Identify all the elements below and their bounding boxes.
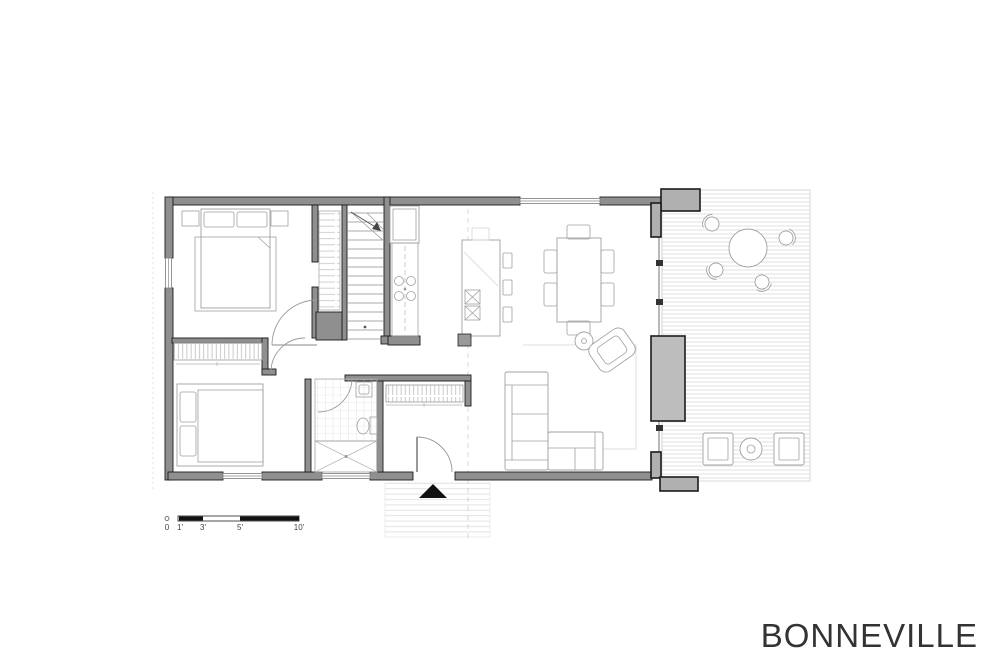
burner: [407, 277, 416, 286]
wall-stair-right: [384, 197, 390, 343]
burner: [407, 292, 416, 301]
pillar-bottom-stem: [651, 452, 661, 478]
scale-seg-1: [179, 517, 203, 521]
closet-slider-2: [386, 403, 462, 407]
mullion: [656, 299, 663, 305]
island-counter: [462, 240, 500, 336]
wall-bath-right: [377, 381, 383, 472]
stool: [503, 280, 512, 295]
mullion: [656, 425, 663, 431]
bed-2: [177, 384, 263, 466]
dining-set: [544, 225, 614, 335]
stair-dot: [364, 326, 367, 329]
floor-plan-canvas: 0 1' 3' 5' 10' BONNEVILLE: [0, 0, 1000, 667]
dining-chair: [544, 250, 557, 273]
scale-label-3: 3': [200, 523, 206, 532]
deck-planter: [651, 336, 685, 421]
wall-hall-left: [305, 379, 311, 472]
pillar-top-stem: [651, 203, 661, 237]
stair-arrow-head: [372, 222, 381, 231]
wall-kitchen-base: [388, 336, 420, 345]
wall-closet-end: [465, 381, 471, 406]
master-bed: [201, 209, 270, 308]
scale-label-1: 1': [177, 523, 183, 532]
entry-closet: [386, 385, 463, 402]
dining-chair: [567, 225, 590, 239]
pillar-top-right: [661, 189, 700, 211]
project-title: BONNEVILLE: [761, 617, 978, 654]
bedroom-2: [177, 384, 263, 466]
wall-bed2-jog-h: [262, 369, 276, 375]
shower-drain: [345, 455, 348, 458]
fridge: [390, 206, 419, 243]
wall-master-right-upper: [312, 205, 318, 262]
stool: [503, 253, 512, 268]
scale-label-0: 0: [165, 523, 170, 532]
kitchen-island: [458, 228, 512, 346]
wall-bottom-2: [262, 472, 322, 480]
mullion: [656, 260, 663, 266]
dining-chair: [601, 250, 614, 273]
armchair: [586, 325, 639, 375]
dining-table: [557, 238, 601, 322]
island-hood: [472, 228, 489, 240]
deck-side-table: [740, 438, 762, 460]
nightstand: [271, 211, 288, 226]
stool: [503, 307, 512, 322]
wall-left-1: [165, 197, 173, 258]
burner: [395, 277, 404, 286]
door-bedroom2-arc: [271, 338, 305, 372]
closet-slider-1: [176, 362, 260, 366]
living-room: [505, 325, 638, 470]
burner: [395, 292, 404, 301]
linen-closet: [319, 211, 340, 310]
floor-plan-drawing: 0 1' 3' 5' 10' BONNEVILLE: [0, 0, 1000, 667]
master-bedroom: [182, 209, 288, 311]
stairs: [347, 212, 384, 339]
wall-closet-top: [172, 338, 268, 343]
scale-bar: 0 1' 3' 5' 10': [165, 516, 305, 532]
island-column: [458, 334, 471, 346]
deck-round-table: [729, 229, 767, 267]
scale-label-10: 10': [294, 523, 305, 532]
scale-label-5: 5': [237, 523, 243, 532]
bedroom2-closet: [174, 343, 262, 360]
wall-bottom-1: [168, 472, 223, 480]
cooktop-knob: [404, 288, 407, 291]
dining-chair: [544, 283, 557, 306]
kitchen: [390, 206, 419, 336]
dining-chair: [601, 283, 614, 306]
wall-left-2: [165, 288, 173, 480]
bathroom: [315, 379, 377, 472]
scale-zero-mark: [165, 517, 169, 521]
door-master-arc: [272, 300, 317, 345]
door-entry-arc: [417, 437, 452, 472]
pillar-bottom-right: [660, 477, 698, 491]
armchair-body: [586, 325, 639, 375]
stair-direction-arrow-icon: [351, 212, 377, 228]
wall-bottom-4: [455, 472, 652, 480]
wall-bottom-3: [370, 472, 413, 480]
nightstand: [182, 211, 199, 226]
wall-top-1: [168, 197, 520, 205]
scale-seg-2: [240, 517, 299, 521]
entry-stoop: [385, 483, 490, 537]
sofa-section-vertical: [505, 372, 548, 470]
wall-linen-base: [316, 312, 342, 340]
wall-stair-left: [342, 205, 347, 340]
